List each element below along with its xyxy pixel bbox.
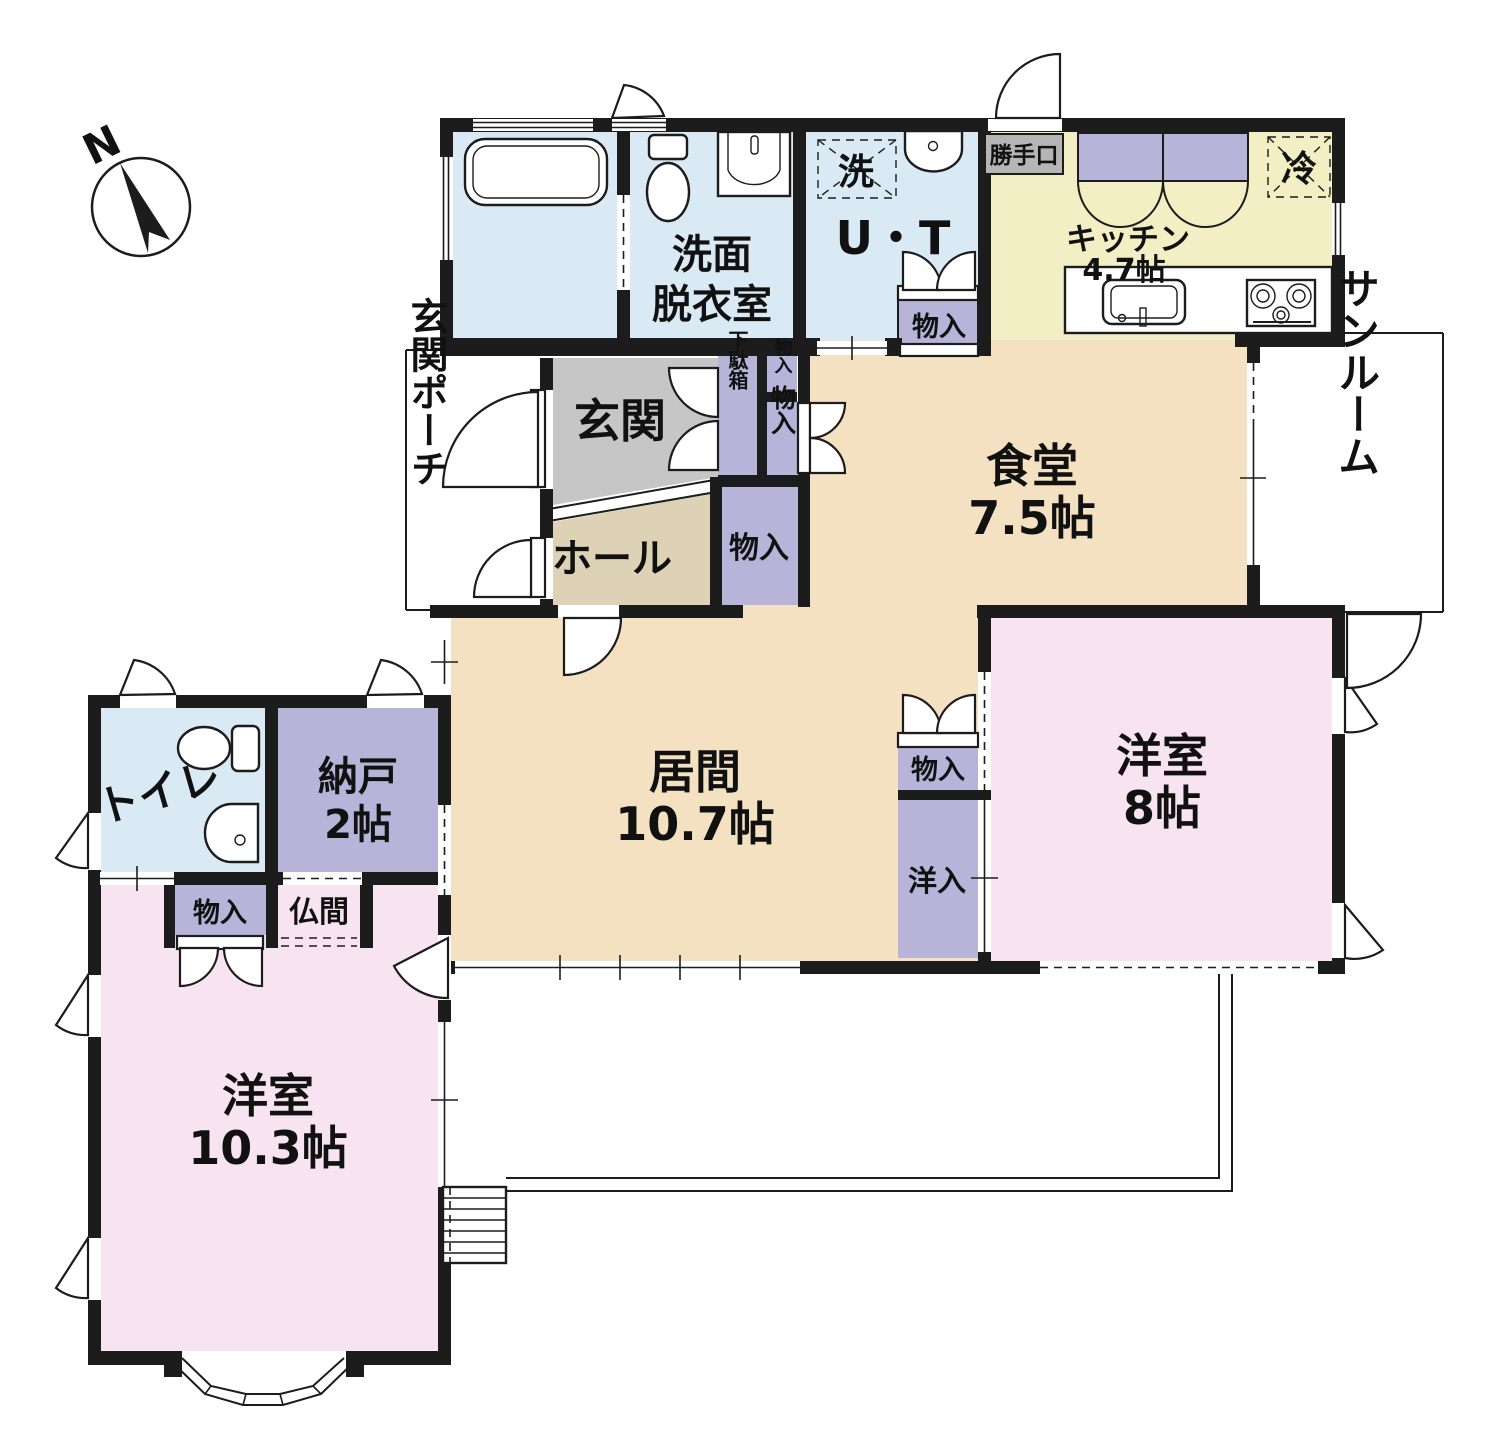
- shoe-cabinet-label: 下駄箱: [725, 330, 749, 391]
- window-kitchen-right: [1332, 203, 1345, 255]
- living-label: 居間: [649, 745, 741, 799]
- butsuma-label: 仏間: [289, 895, 349, 930]
- stove-icon: [1247, 280, 1315, 326]
- sliding-bath-washroom: [617, 195, 630, 290]
- ut-sink-icon: [905, 131, 962, 171]
- window-bath-left: [440, 157, 453, 260]
- window-dining-sunroom-upper: [1247, 363, 1260, 420]
- floor-plan: N 洗面 脱衣室 U・T 洗 冷 勝手口 キッチン 4.7帖 食堂 7.5帖 サ…: [0, 0, 1500, 1453]
- genkan-closet-small-label: 物入: [772, 337, 793, 374]
- bathtub-icon: [465, 139, 607, 205]
- nando-size-label: 2帖: [324, 802, 392, 848]
- living-closet-leafs: [898, 733, 978, 747]
- western8-label: 洋室: [1116, 729, 1208, 783]
- stairs: [443, 1187, 506, 1263]
- shoe-cabinet-lower: [718, 437, 757, 475]
- nando-label: 納戸: [318, 754, 398, 800]
- dining-size-label: 7.5帖: [968, 491, 1096, 545]
- hall-closet-label: 物入: [729, 531, 789, 566]
- porch-label: 玄関ポーチ: [404, 297, 448, 487]
- toilet-sink-icon: [205, 804, 258, 862]
- western10-size-label: 10.3帖: [188, 1121, 348, 1175]
- washer-label: 洗: [838, 152, 874, 193]
- genkan-closet-front: [798, 403, 810, 473]
- sunroom-label: サンルーム: [1332, 267, 1381, 477]
- sliding-living-western8-upper: [978, 672, 991, 790]
- genkan-label: 玄関: [574, 394, 666, 448]
- sliding-nando-living: [438, 805, 451, 895]
- window-bath-top: [473, 119, 593, 131]
- washroom-label-2: 脱衣室: [652, 282, 772, 328]
- ut-closet-front: [900, 344, 978, 356]
- fridge-label: 冷: [1281, 149, 1317, 190]
- utility-label: U・T: [836, 211, 951, 265]
- dining-label: 食堂: [986, 439, 1078, 493]
- vanity-basin-icon: [718, 132, 790, 196]
- back-door-opening: [988, 119, 1062, 131]
- kitchen-size-label: 4.7帖: [1082, 253, 1165, 288]
- washroom-label-1: 洗面: [672, 232, 752, 278]
- porch-side-door-leaf: [531, 538, 545, 597]
- living-size-label: 10.7帖: [615, 797, 775, 851]
- sliding-nando-door: [283, 872, 362, 885]
- western8-size-label: 8帖: [1123, 781, 1201, 835]
- toilet-closet-label: 物入: [193, 898, 247, 929]
- west-closet-label: 洋入: [908, 864, 966, 898]
- washroom-toilet-icon: [647, 135, 689, 221]
- ut-closet-label: 物入: [912, 312, 966, 343]
- window-western8-south: [1040, 961, 1318, 974]
- western10-label: 洋室: [222, 1069, 314, 1123]
- genkan-closet-tall-label: 物入: [768, 385, 797, 435]
- living-closet-label: 物入: [911, 755, 965, 786]
- hall-living-opening: [558, 605, 619, 618]
- back-door-label: 勝手口: [990, 142, 1059, 169]
- hall-label: ホール: [552, 536, 672, 582]
